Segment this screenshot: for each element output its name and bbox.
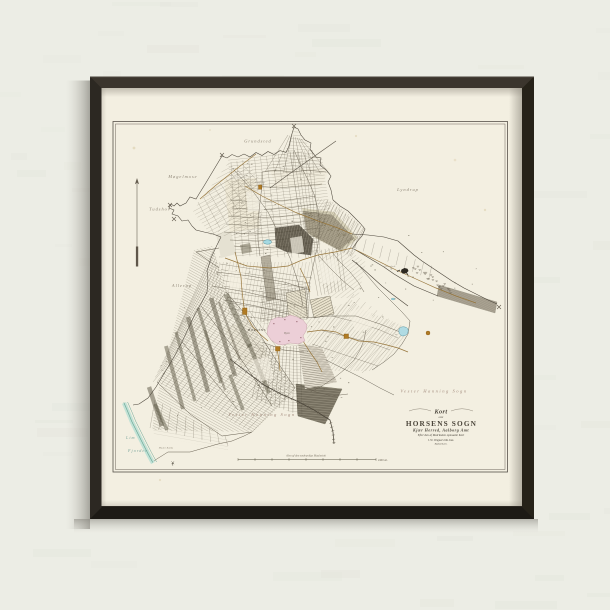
svg-text:Vester Hanning Sogn: Vester Hanning Sogn <box>228 412 295 417</box>
svg-text:HORSENS: HORSENS <box>248 328 266 332</box>
svg-text:2400 Al.: 2400 Al. <box>378 459 388 462</box>
svg-text:Vester Hanning Sogn: Vester Hanning Sogn <box>400 389 467 394</box>
svg-text:Allerup: Allerup <box>171 283 192 288</box>
svg-text:Lyndrup: Lyndrup <box>396 187 419 192</box>
svg-text:Byen: Byen <box>284 331 290 335</box>
svg-text:Efter den af Matrikulen opmaal: Efter den af Matrikulen opmaalte Kort <box>417 433 465 437</box>
svg-text:Kjøbenhavn.: Kjøbenhavn. <box>434 443 448 446</box>
svg-text:Mader Bakke: Mader Bakke <box>158 447 174 450</box>
svg-text:Fjorden: Fjorden <box>127 448 148 453</box>
svg-text:Grundsted: Grundsted <box>244 139 272 144</box>
svg-text:Lim: Lim <box>125 435 136 440</box>
svg-text:Møgelmose: Møgelmose <box>167 174 197 179</box>
svg-text:Kort: Kort <box>434 409 448 416</box>
svg-text:Gamgholt: Gamgholt <box>385 265 396 268</box>
svg-text:Alen af den sædvanlige Maalest: Alen af den sædvanlige Maalestok <box>285 454 326 458</box>
svg-text:Kjær Herred, Aalborg Amt: Kjær Herred, Aalborg Amt <box>412 428 469 433</box>
svg-text:Danstrup: Danstrup <box>254 181 266 184</box>
svg-text:Tudshov: Tudshov <box>149 207 171 212</box>
